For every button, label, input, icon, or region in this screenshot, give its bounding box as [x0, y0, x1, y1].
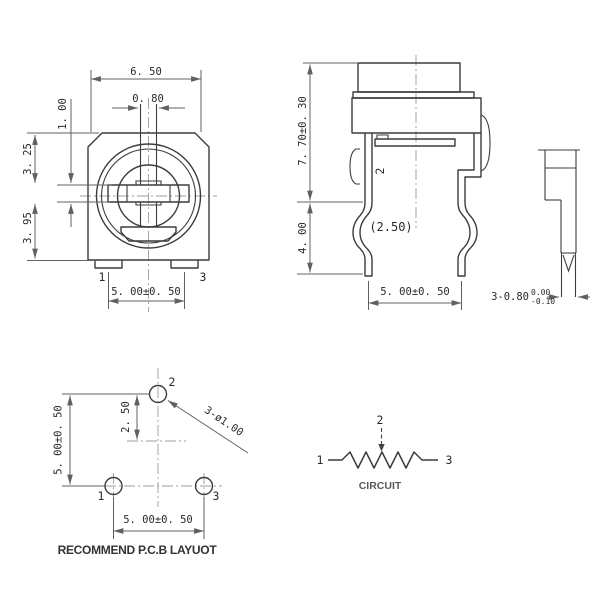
- pcb-horizontal-pitch-dimension: 5. 00±0. 50: [123, 514, 193, 526]
- pin-detail-outline: [538, 150, 580, 297]
- front-slot-height-dimension: 1. 00: [57, 98, 69, 130]
- side-height-dimension: 7. 70±0. 30: [297, 96, 309, 166]
- pcb-hole-size-callout: 3-ø1.00: [202, 404, 245, 439]
- front-pin1-label: 1: [99, 270, 106, 284]
- circuit-title: CIRCUIT: [359, 480, 402, 492]
- side-view-body-outline: [350, 63, 490, 276]
- front-pin3-label: 3: [200, 270, 207, 284]
- circuit-terminal3-label: 3: [446, 453, 453, 467]
- pcb-layout-view: 5. 00±0. 50 2. 50 3-ø1.00 5. 00±0. 50 2 …: [53, 368, 249, 557]
- pin-tip-notch: [563, 255, 574, 271]
- pcb-hole3-label: 3: [213, 489, 220, 503]
- wiper-arrow: [378, 444, 384, 452]
- front-slot-width-dimension: 0. 80: [132, 93, 164, 105]
- pcb-vertical-pitch-dimension: 5. 00±0. 50: [53, 405, 65, 475]
- adjust-knob: [358, 63, 460, 92]
- side-body: [352, 98, 481, 133]
- side-view-dimension-lines: [297, 63, 462, 310]
- front-width-dimension: 6. 50: [130, 66, 162, 78]
- knob-flange: [353, 92, 474, 98]
- left-clip: [350, 149, 360, 184]
- pin-width-tolerance-upper: 0.00: [531, 288, 550, 297]
- front-view-body-outline: [88, 104, 209, 268]
- washer-plate: [375, 139, 455, 146]
- side-pin-pitch-dimension: 5. 00±0. 50: [380, 286, 450, 298]
- circuit-diagram: 2 1 3 CIRCUIT: [317, 413, 453, 492]
- circuit-terminal1-label: 1: [317, 453, 324, 467]
- pin-1-3-lead: [458, 133, 481, 276]
- pcb-hole1-label: 1: [98, 489, 105, 503]
- front-lower-dimension: 3. 95: [22, 212, 34, 244]
- trimmer-potentiometer-drawing: 6. 50 0. 80 1. 00 3. 25 3. 95 5. 00±0. 5…: [0, 0, 600, 600]
- pcb-layout-title: RECOMMEND P.C.B LAYUOT: [58, 543, 218, 557]
- pcb-hole2-offset-dimension: 2. 50: [120, 401, 132, 433]
- pcb-hole2-label: 2: [169, 375, 176, 389]
- pin-width-tolerance-lower: -0.10: [531, 297, 555, 306]
- side-lead-length-dimension: 4. 00: [297, 222, 309, 254]
- front-view-dimension-lines: [27, 70, 201, 309]
- circuit-terminal2-label: 2: [377, 413, 384, 427]
- side-view: 7. 70±0. 30 4. 00 2 (2.50) 5. 00±0. 50: [297, 55, 490, 310]
- pin-width-dimension: 3-0.80: [491, 291, 529, 303]
- pin-2-lead: [353, 133, 372, 276]
- right-clip: [481, 115, 490, 171]
- pin-detail-view: 3-0.80 0.00 -0.10: [491, 150, 590, 306]
- resistor-symbol: [328, 452, 438, 468]
- side-pin2-label: 2: [373, 168, 387, 175]
- side-center-offset-dimension: (2.50): [369, 220, 412, 234]
- front-upper-dimension: 3. 25: [22, 143, 34, 175]
- pin-3-front: [171, 260, 198, 268]
- front-view: 6. 50 0. 80 1. 00 3. 25 3. 95 5. 00±0. 5…: [22, 66, 217, 312]
- front-pin-pitch-dimension: 5. 00±0. 50: [111, 286, 181, 298]
- pin-1-front: [95, 260, 122, 268]
- technical-drawing: 6. 50 0. 80 1. 00 3. 25 3. 95 5. 00±0. 5…: [0, 0, 600, 600]
